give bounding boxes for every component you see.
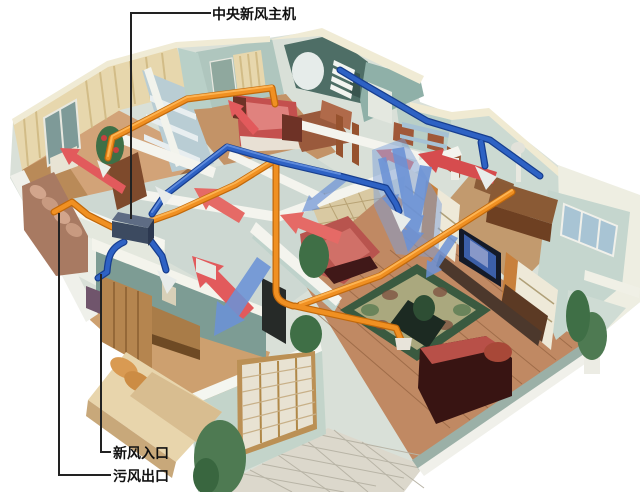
svg-text:中央新风主机: 中央新风主机 bbox=[212, 6, 296, 22]
svg-text:污风出口: 污风出口 bbox=[113, 468, 169, 484]
svg-text:新风入口: 新风入口 bbox=[113, 445, 169, 461]
